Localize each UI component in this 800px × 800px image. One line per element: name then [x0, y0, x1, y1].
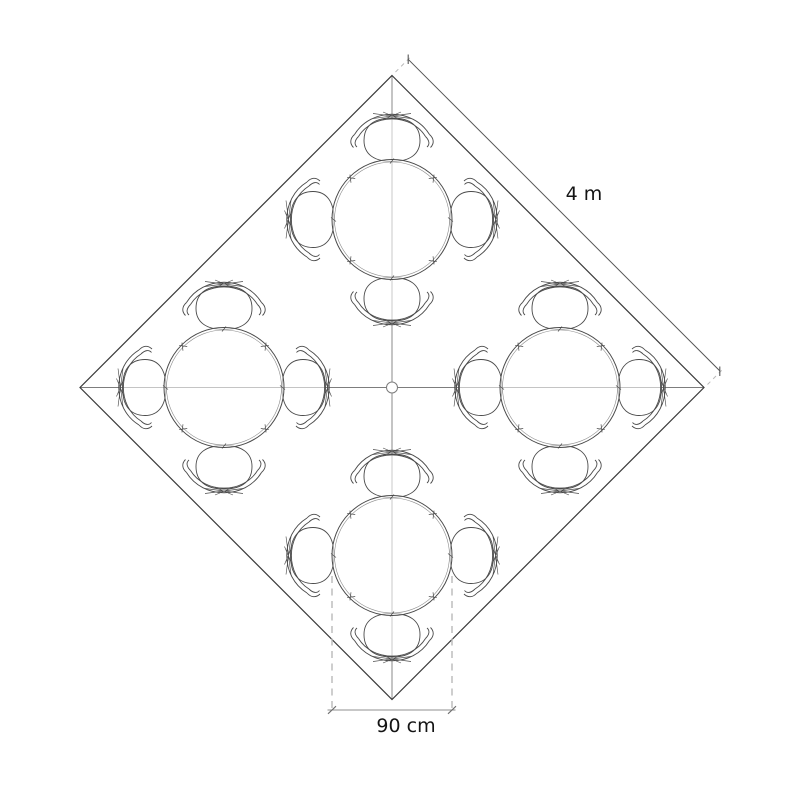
dimension-side-extension-right	[708, 369, 724, 385]
dining-set-right	[453, 280, 668, 495]
dining-set-bottom	[285, 448, 500, 663]
center-point	[387, 382, 398, 393]
dining-set-left	[117, 280, 332, 495]
table-dimension-label: 90 cm	[366, 715, 446, 738]
floor-plan-canvas	[0, 0, 800, 800]
floor-plan-diagram: 4 m 90 cm	[0, 0, 800, 800]
dimension-side-extension-top	[396, 56, 412, 72]
dining-set-top	[285, 112, 500, 327]
side-dimension-label: 4 m	[556, 183, 612, 206]
